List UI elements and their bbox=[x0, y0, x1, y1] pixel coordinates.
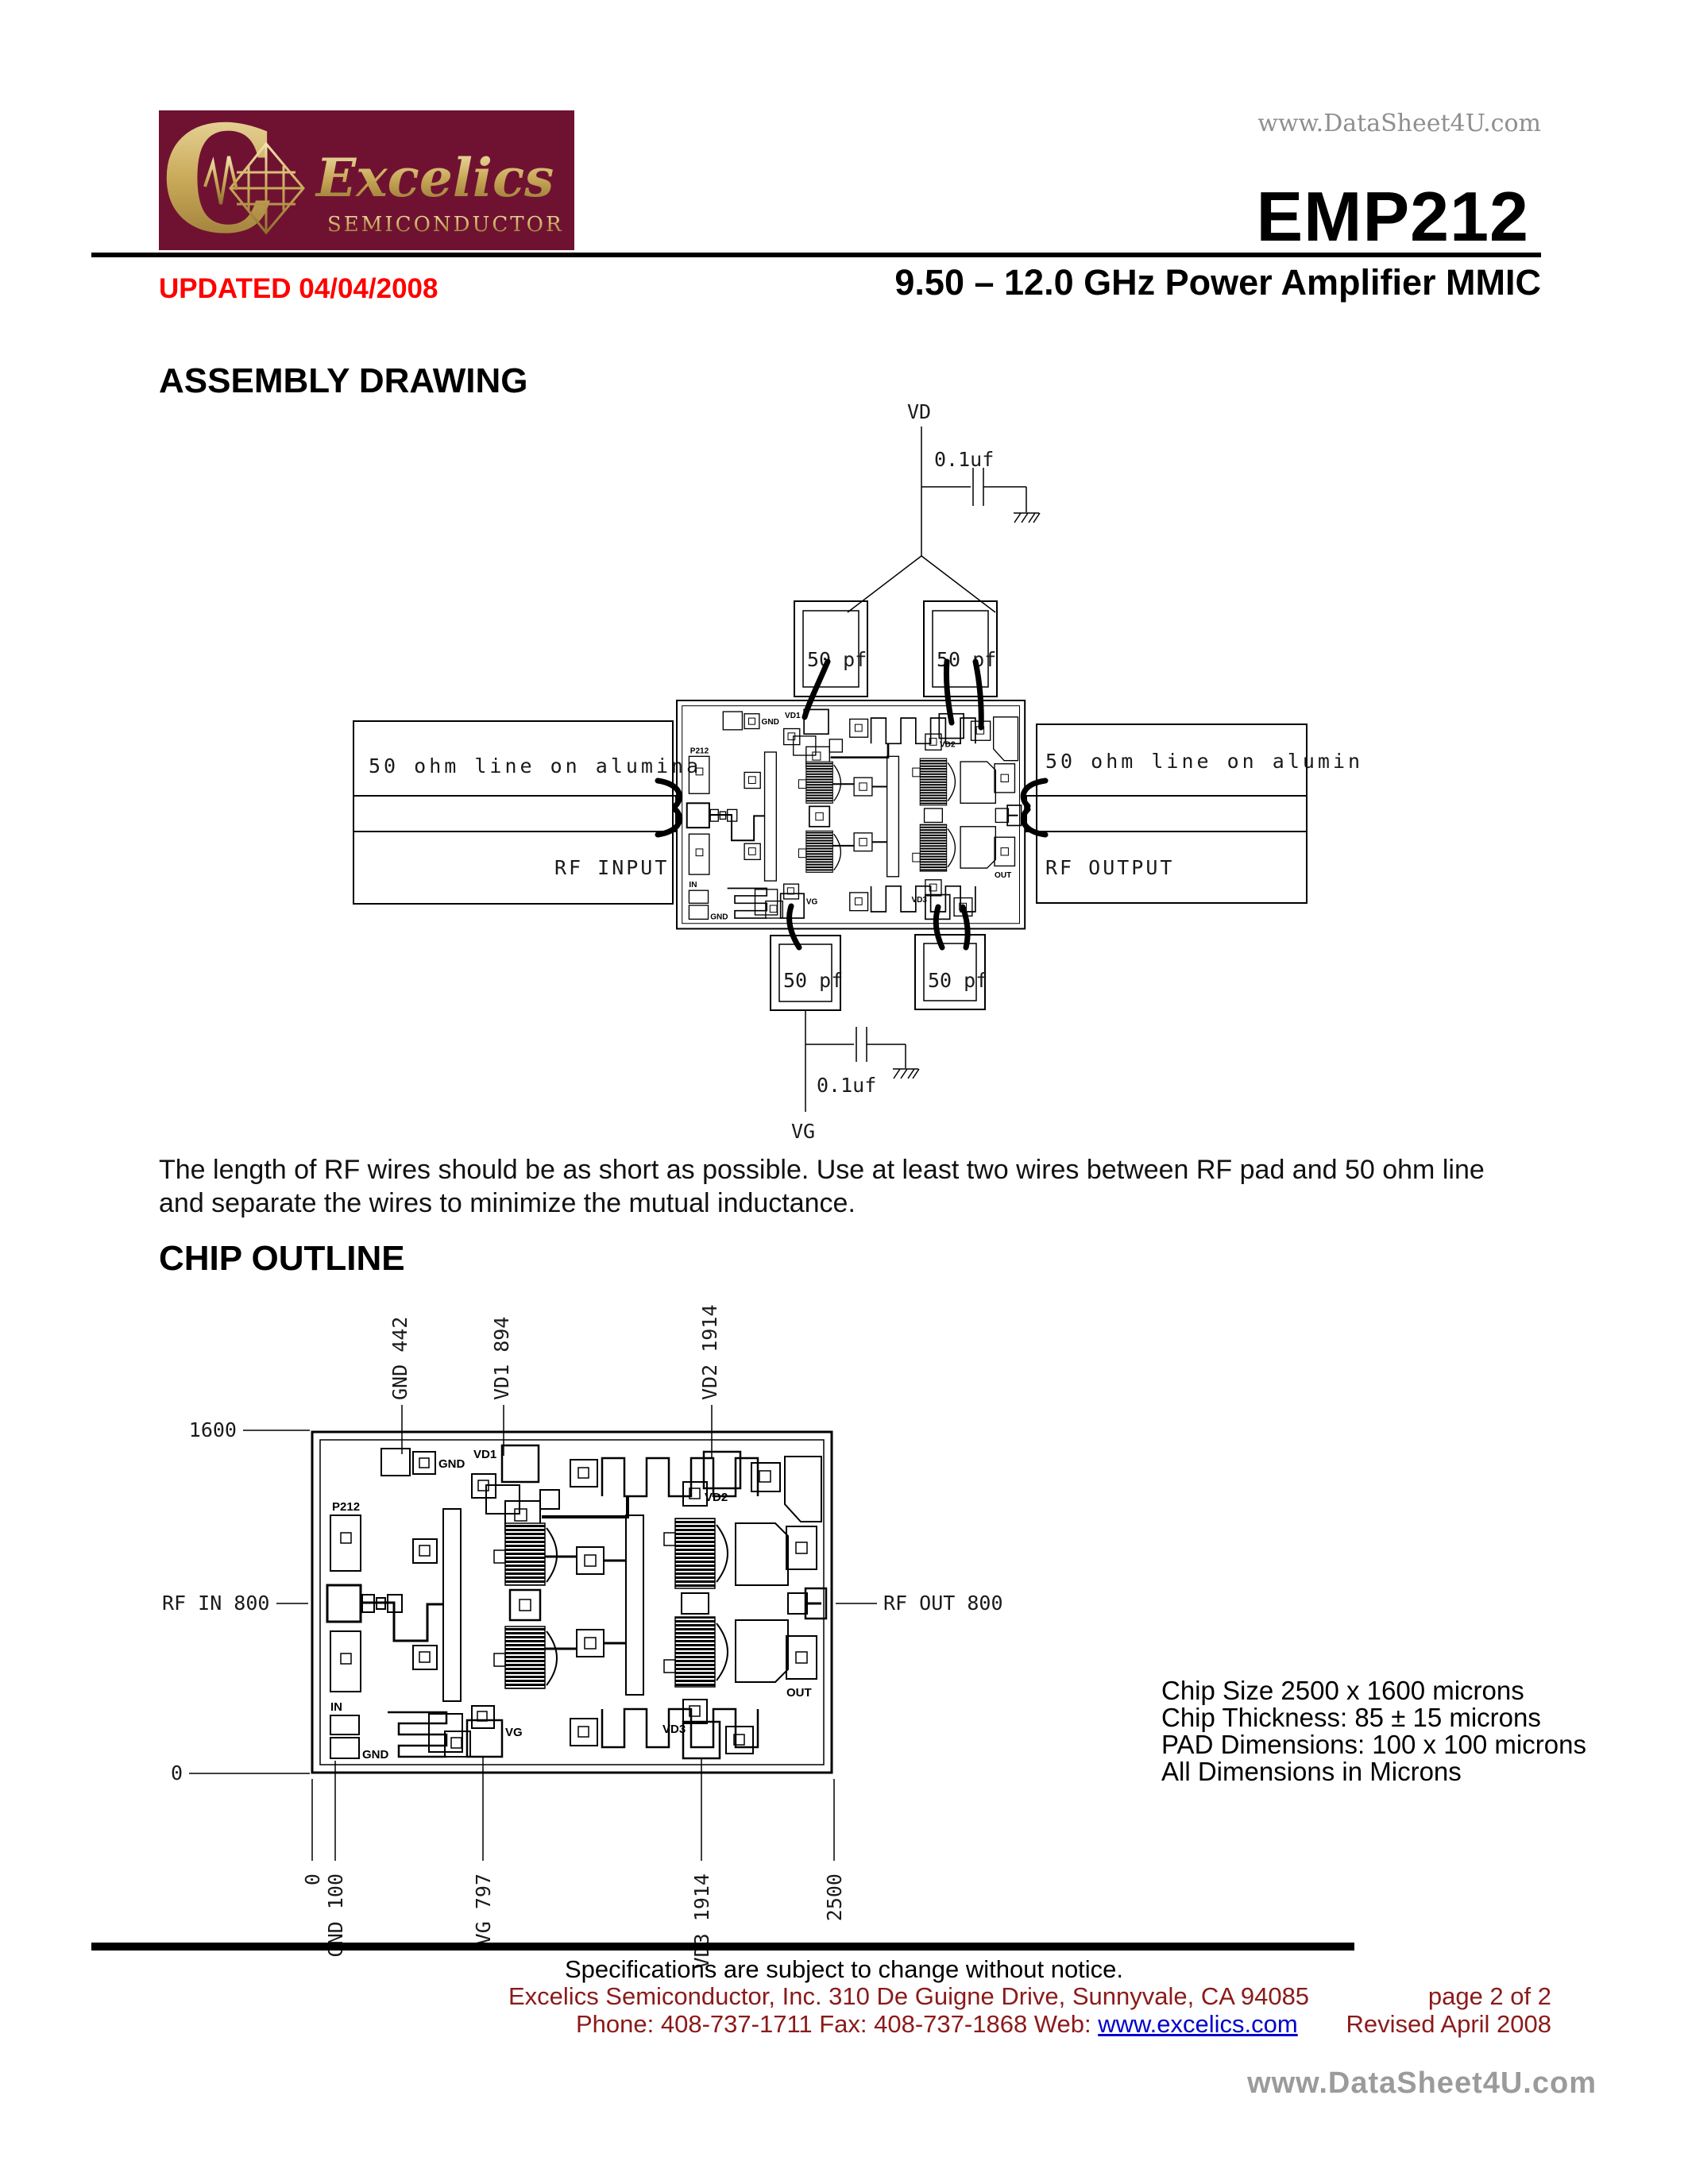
vg-label: VG bbox=[791, 1120, 815, 1143]
vd-label: VD bbox=[907, 400, 931, 423]
datasheet-page: P212 IN GND GND VD1 bbox=[0, 0, 1688, 2184]
chip-outline-figure: 1600 0 RF IN 800 RF OUT 800 GND 442 VD1 … bbox=[119, 1267, 1033, 2061]
alumina-block-input: 50 ohm line on alumina RF INPUT bbox=[353, 721, 701, 904]
fifty-ohm-line-left bbox=[353, 796, 676, 832]
bypass-cap-50pf-bottom-right: 50 pf bbox=[915, 935, 987, 1009]
svg-text:50 pf: 50 pf bbox=[928, 969, 987, 992]
note-line-1: The length of RF wires should be as shor… bbox=[159, 1153, 1541, 1187]
footer-notice: Specifications are subject to change wit… bbox=[0, 1955, 1688, 1984]
dim-0-bottom-label: 0 bbox=[301, 1873, 324, 1885]
logo-sub-text: SEMICONDUCTOR bbox=[327, 213, 564, 237]
svg-text:50 pf: 50 pf bbox=[807, 648, 867, 671]
logo-brand-text: Excelics bbox=[315, 147, 554, 209]
footer-phone-fax: Phone: 408-737-1711 Fax: 408-737-1868 We… bbox=[576, 2010, 1091, 2038]
dim-0-left-label: 0 bbox=[171, 1761, 183, 1785]
rf-in-800-label: RF IN 800 bbox=[162, 1592, 269, 1615]
dim-vd1-894-label: VD1 894 bbox=[490, 1317, 513, 1400]
all-dimensions-line: All Dimensions in Microns bbox=[1161, 1758, 1586, 1785]
header-rule bbox=[91, 253, 1541, 257]
updated-date: UPDATED 04/04/2008 bbox=[159, 273, 438, 305]
dim-1600-label: 1600 bbox=[189, 1418, 237, 1441]
alumina-right-label: 50 ohm line on alumina bbox=[1045, 750, 1358, 773]
chip-size-line: Chip Size 2500 x 1600 microns bbox=[1161, 1677, 1586, 1704]
bypass-cap-50pf-top-left: 50 pf bbox=[794, 601, 867, 696]
chip-thickness-line: Chip Thickness: 85 ± 15 microns bbox=[1161, 1704, 1586, 1731]
chip-info-block: Chip Size 2500 x 1600 microns Chip Thick… bbox=[1161, 1677, 1586, 1785]
bypass-cap-50pf-bottom-left: 50 pf bbox=[771, 936, 843, 1010]
part-number: EMP212 bbox=[1256, 176, 1529, 257]
footer-contact: Phone: 408-737-1711 Fax: 408-737-1868 We… bbox=[576, 2010, 1298, 2039]
bond-wires bbox=[658, 662, 1045, 947]
assembly-note: The length of RF wires should be as shor… bbox=[159, 1153, 1541, 1220]
cap-01uf-bottom-label: 0.1uf bbox=[817, 1074, 876, 1097]
footer-company: Excelics Semiconductor, Inc. 310 De Guig… bbox=[508, 1982, 1309, 2011]
page-title: 9.50 – 12.0 GHz Power Amplifier MMIC bbox=[894, 262, 1541, 303]
footer-page-number: page 2 of 2 bbox=[1428, 1982, 1551, 2011]
alumina-left-label: 50 ohm line on alumina bbox=[369, 754, 701, 778]
rf-input-label: RF INPUT bbox=[554, 856, 669, 879]
vg-decoupling-wire bbox=[805, 1027, 906, 1068]
watermark-top: www.DataSheet4U.com bbox=[1257, 110, 1541, 137]
dim-vd2-1914-label: VD2 1914 bbox=[698, 1305, 721, 1400]
rf-out-800-label: RF OUT 800 bbox=[883, 1592, 1003, 1615]
pad-dimensions-line: PAD Dimensions: 100 x 100 microns bbox=[1161, 1731, 1586, 1758]
ground-symbol-icon bbox=[1014, 513, 1040, 523]
dim-gnd-442-label: GND 442 bbox=[388, 1317, 411, 1400]
vd-decoupling-wire bbox=[921, 468, 1026, 512]
cap-01uf-top-label: 0.1uf bbox=[934, 448, 994, 471]
svg-text:50 pf: 50 pf bbox=[783, 969, 843, 992]
vd-fork-lines bbox=[848, 556, 995, 612]
footer-web-link[interactable]: www.excelics.com bbox=[1098, 2010, 1298, 2038]
bypass-cap-50pf-top-right: 50 pf bbox=[924, 601, 997, 696]
rf-output-label: RF OUTPUT bbox=[1045, 856, 1174, 879]
footer-rule bbox=[91, 1943, 1354, 1951]
watermark-bottom: www.DataSheet4U.com bbox=[1247, 2066, 1597, 2101]
assembly-drawing-figure: VD 0.1uf 50 pf 50 pf 50 ohm line on alum… bbox=[342, 393, 1358, 1148]
footer-revised: Revised April 2008 bbox=[1346, 2010, 1552, 2039]
excelics-logo: C Excelics SEMICONDUCTOR bbox=[159, 110, 574, 250]
note-line-2: and separate the wires to minimize the m… bbox=[159, 1187, 1541, 1220]
fifty-ohm-line-right bbox=[1026, 796, 1307, 832]
dim-2500-label: 2500 bbox=[823, 1873, 846, 1921]
dim-vg-797-label: VG 797 bbox=[472, 1873, 495, 1945]
alumina-block-output: 50 ohm line on alumina RF OUTPUT bbox=[1026, 724, 1358, 903]
logo-c-emblem-icon: C bbox=[160, 110, 277, 250]
ground-symbol-icon bbox=[893, 1069, 919, 1078]
